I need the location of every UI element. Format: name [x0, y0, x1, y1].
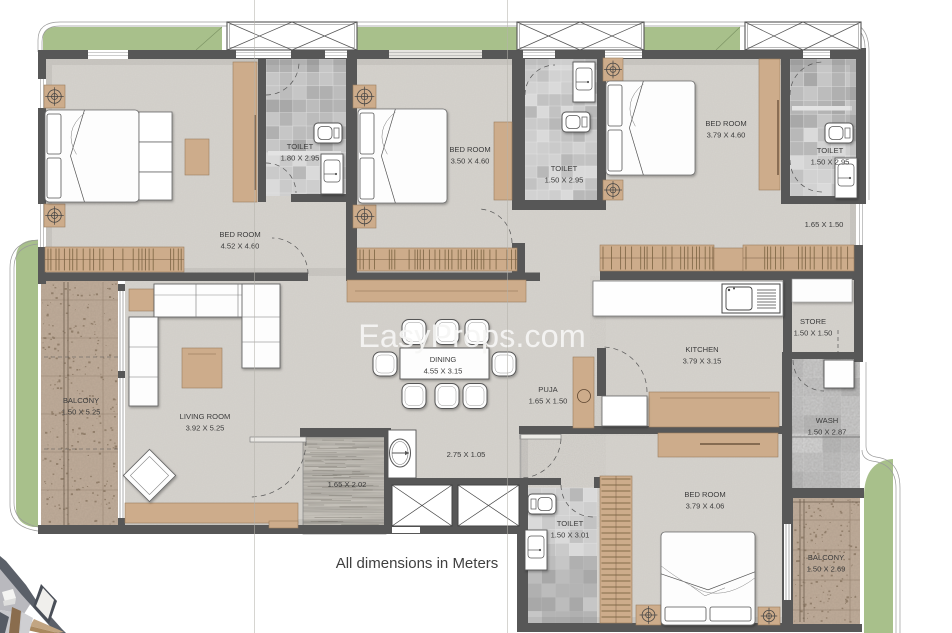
svg-text:TOILET: TOILET — [287, 142, 314, 151]
svg-text:All dimensions in Meters: All dimensions in Meters — [336, 555, 499, 572]
svg-text:1.50 X 2.95: 1.50 X 2.95 — [811, 158, 850, 167]
svg-text:KITCHEN: KITCHEN — [685, 345, 718, 354]
svg-text:4.55 X 3.15: 4.55 X 3.15 — [424, 367, 463, 376]
svg-text:PUJA: PUJA — [538, 385, 558, 394]
svg-text:STORE: STORE — [800, 317, 826, 326]
svg-text:1.50 X 1.50: 1.50 X 1.50 — [794, 329, 833, 338]
svg-text:1.80 X 2.95: 1.80 X 2.95 — [281, 154, 320, 163]
svg-text:3.79 X 4.06: 3.79 X 4.06 — [686, 502, 725, 511]
svg-text:3.92 X 5.25: 3.92 X 5.25 — [186, 424, 225, 433]
svg-text:1.65 X 1.50: 1.65 X 1.50 — [529, 397, 568, 406]
svg-text:EasyProps.com: EasyProps.com — [358, 318, 586, 354]
svg-text:1.50 X 2.69: 1.50 X 2.69 — [807, 565, 846, 574]
svg-text:3.79 X 4.60: 3.79 X 4.60 — [707, 131, 746, 140]
svg-text:TOILET: TOILET — [817, 146, 844, 155]
svg-text:LIVING ROOM: LIVING ROOM — [180, 412, 231, 421]
svg-text:1.50 X 2.87: 1.50 X 2.87 — [808, 428, 847, 437]
svg-text:WASH: WASH — [816, 416, 839, 425]
svg-text:BED ROOM: BED ROOM — [684, 490, 725, 499]
svg-text:1.50 X 2.95: 1.50 X 2.95 — [545, 176, 584, 185]
svg-text:3.79 X 3.15: 3.79 X 3.15 — [683, 357, 722, 366]
svg-text:3.50 X 4.60: 3.50 X 4.60 — [451, 157, 490, 166]
svg-text:BALCONY: BALCONY — [63, 396, 99, 405]
svg-text:1.65 X 2.02: 1.65 X 2.02 — [328, 480, 367, 489]
svg-text:4.52 X 4.60: 4.52 X 4.60 — [221, 242, 260, 251]
svg-text:2.75 X 1.05: 2.75 X 1.05 — [447, 450, 486, 459]
svg-text:1.50 X 3.01: 1.50 X 3.01 — [551, 531, 590, 540]
svg-text:1.50 X 5.25: 1.50 X 5.25 — [62, 408, 101, 417]
svg-text:BED ROOM: BED ROOM — [449, 145, 490, 154]
svg-text:BED ROOM: BED ROOM — [705, 119, 746, 128]
svg-text:BALCONY: BALCONY — [808, 553, 844, 562]
svg-text:1.65 X 1.50: 1.65 X 1.50 — [805, 220, 844, 229]
svg-text:TOILET: TOILET — [551, 164, 578, 173]
svg-text:DINING: DINING — [430, 355, 457, 364]
svg-text:TOILET: TOILET — [557, 519, 584, 528]
